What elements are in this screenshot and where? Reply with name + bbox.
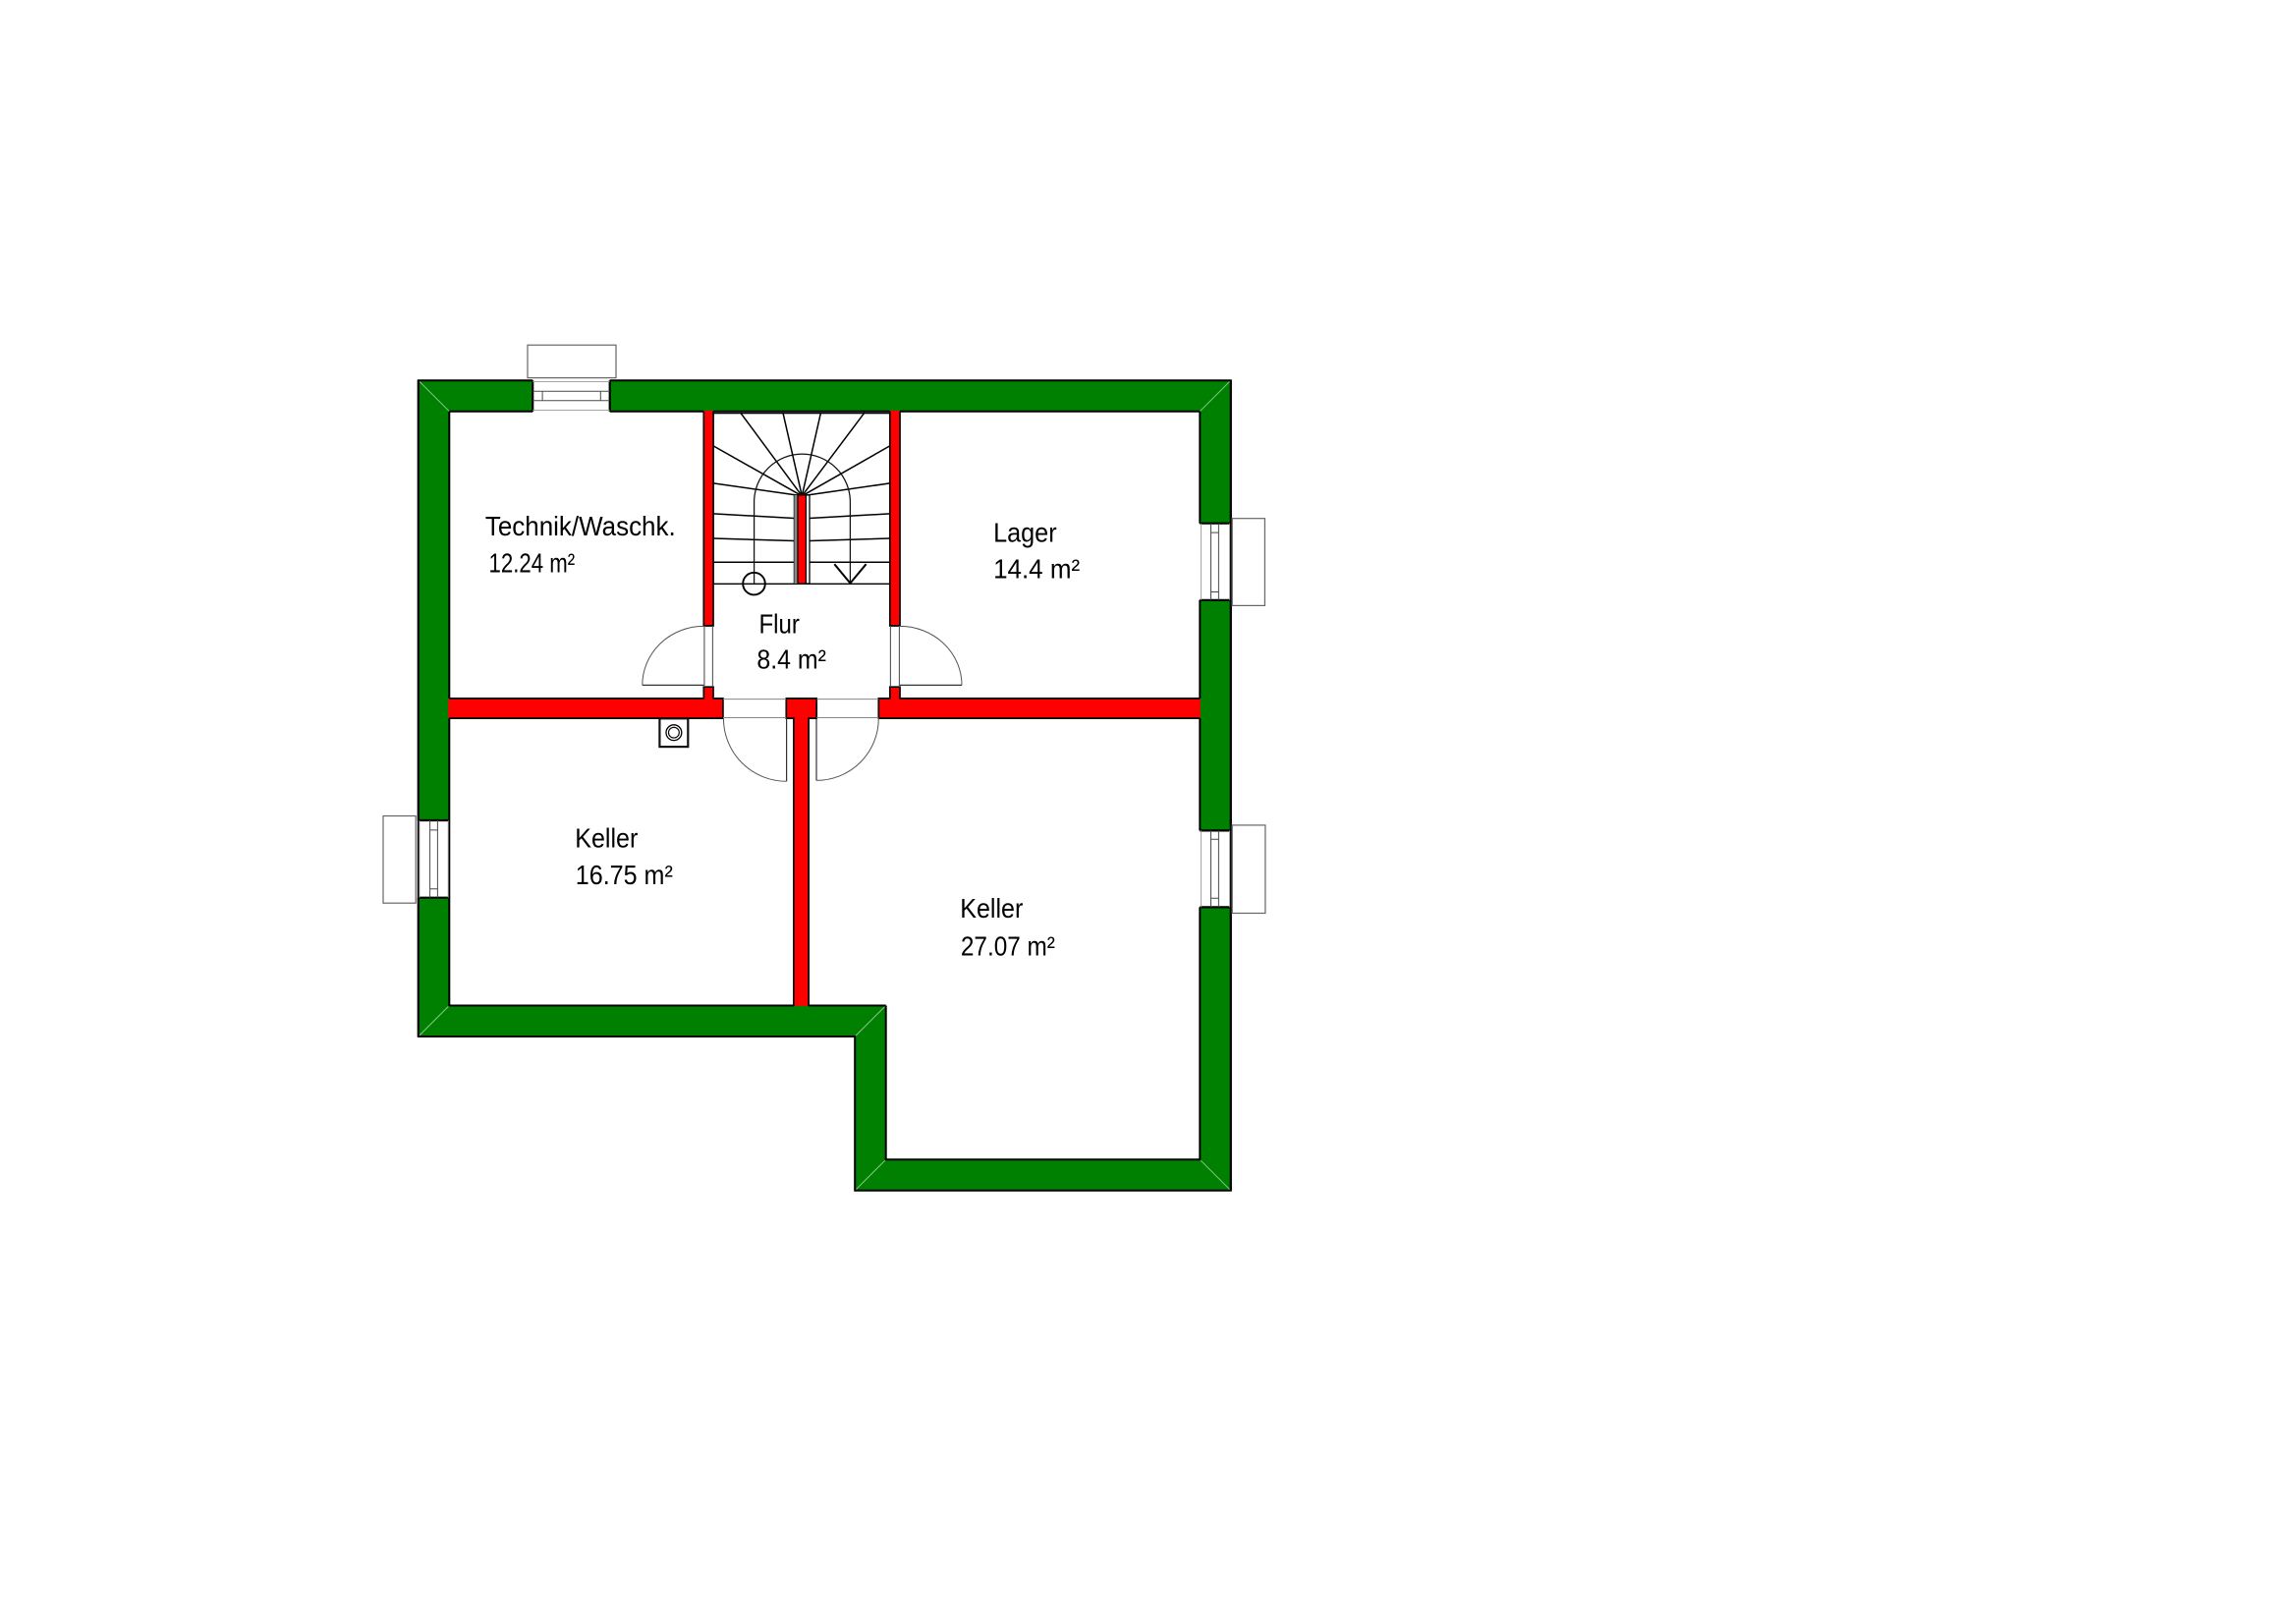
svg-text:Lager: Lager (993, 518, 1057, 548)
svg-text:12.24 m²: 12.24 m² (489, 548, 576, 579)
svg-text:Flur: Flur (759, 609, 800, 640)
svg-text:Keller: Keller (575, 823, 638, 854)
svg-text:Keller: Keller (960, 893, 1023, 924)
svg-text:8.4 m²: 8.4 m² (756, 644, 826, 674)
svg-text:27.07 m²: 27.07 m² (961, 931, 1055, 962)
svg-text:16.75 m²: 16.75 m² (576, 860, 673, 890)
svg-text:Technik/Waschk.: Technik/Waschk. (485, 511, 676, 541)
svg-text:14.4 m²: 14.4 m² (993, 554, 1080, 585)
